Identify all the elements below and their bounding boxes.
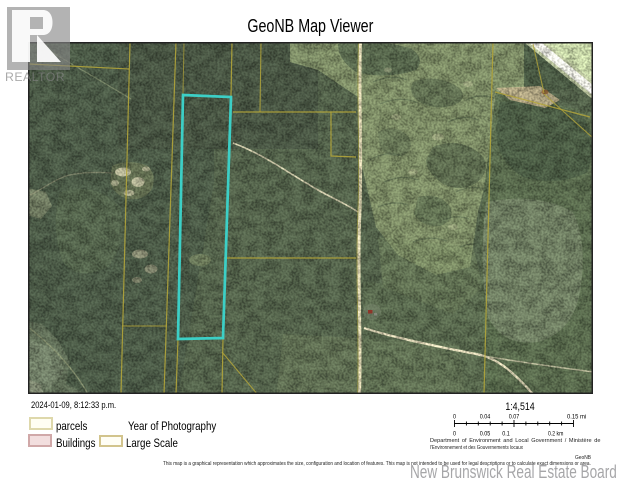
svg-text:0: 0 [453, 414, 457, 420]
svg-text:0.04: 0.04 [480, 414, 491, 420]
svg-text:1:4,514: 1:4,514 [505, 401, 535, 413]
svg-text:0.07: 0.07 [509, 414, 520, 420]
svg-text:0.15 mi: 0.15 mi [567, 413, 586, 420]
svg-text:REALTOR: REALTOR [5, 70, 65, 84]
